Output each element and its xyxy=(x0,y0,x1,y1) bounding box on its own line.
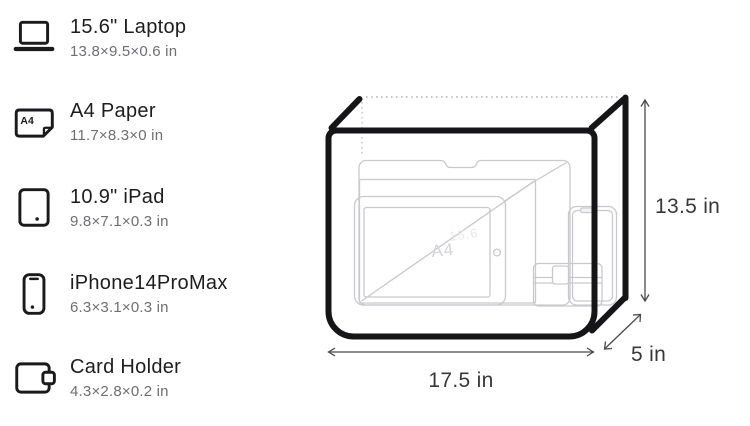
a4-depth-edge xyxy=(506,181,536,201)
laptop-depth-edge xyxy=(536,163,567,181)
product-dimension-figure: 15.6" Laptop 13.8×9.5×0.6 in A4 A4 Paper… xyxy=(0,0,750,426)
height-label: 13.5 in xyxy=(655,195,720,218)
depth-label: 5 in xyxy=(631,343,666,366)
height-arrow xyxy=(641,100,649,301)
bag-top-right-edge xyxy=(592,99,625,128)
ipad-screen xyxy=(364,208,490,298)
a4-watermark: A4 xyxy=(430,240,455,261)
bag-top-left-edge xyxy=(332,99,360,128)
bag-diagram: 15.6 A4 xyxy=(0,0,750,426)
width-label: 17.5 in xyxy=(428,369,493,392)
bag-contents xyxy=(355,161,617,307)
ipad-home-button xyxy=(494,249,501,256)
ipad-outline xyxy=(355,197,506,306)
width-arrow xyxy=(329,348,594,356)
cardholder-clasp xyxy=(553,266,569,284)
